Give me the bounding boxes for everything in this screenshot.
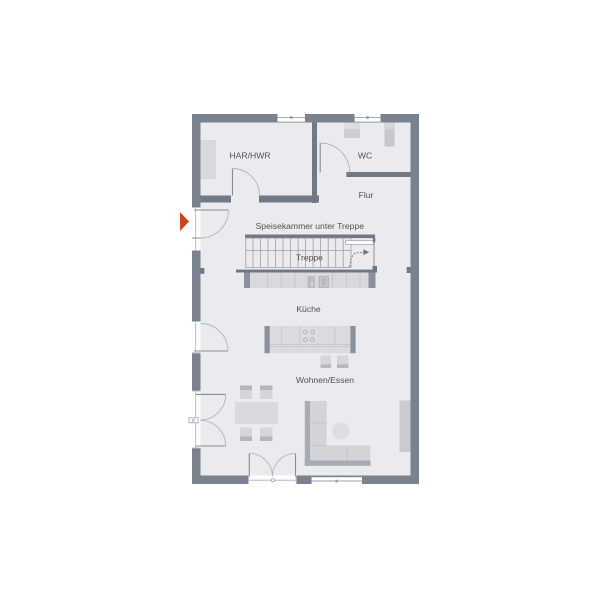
svg-text:Speisekammer unter Treppe: Speisekammer unter Treppe	[256, 221, 365, 231]
svg-text:Küche: Küche	[296, 304, 321, 314]
svg-text:Treppe: Treppe	[296, 253, 323, 263]
svg-text:Flur: Flur	[359, 190, 374, 200]
svg-text:Wohnen/Essen: Wohnen/Essen	[296, 375, 354, 385]
svg-text:WC: WC	[358, 151, 372, 161]
svg-text:HAR/HWR: HAR/HWR	[229, 151, 270, 161]
